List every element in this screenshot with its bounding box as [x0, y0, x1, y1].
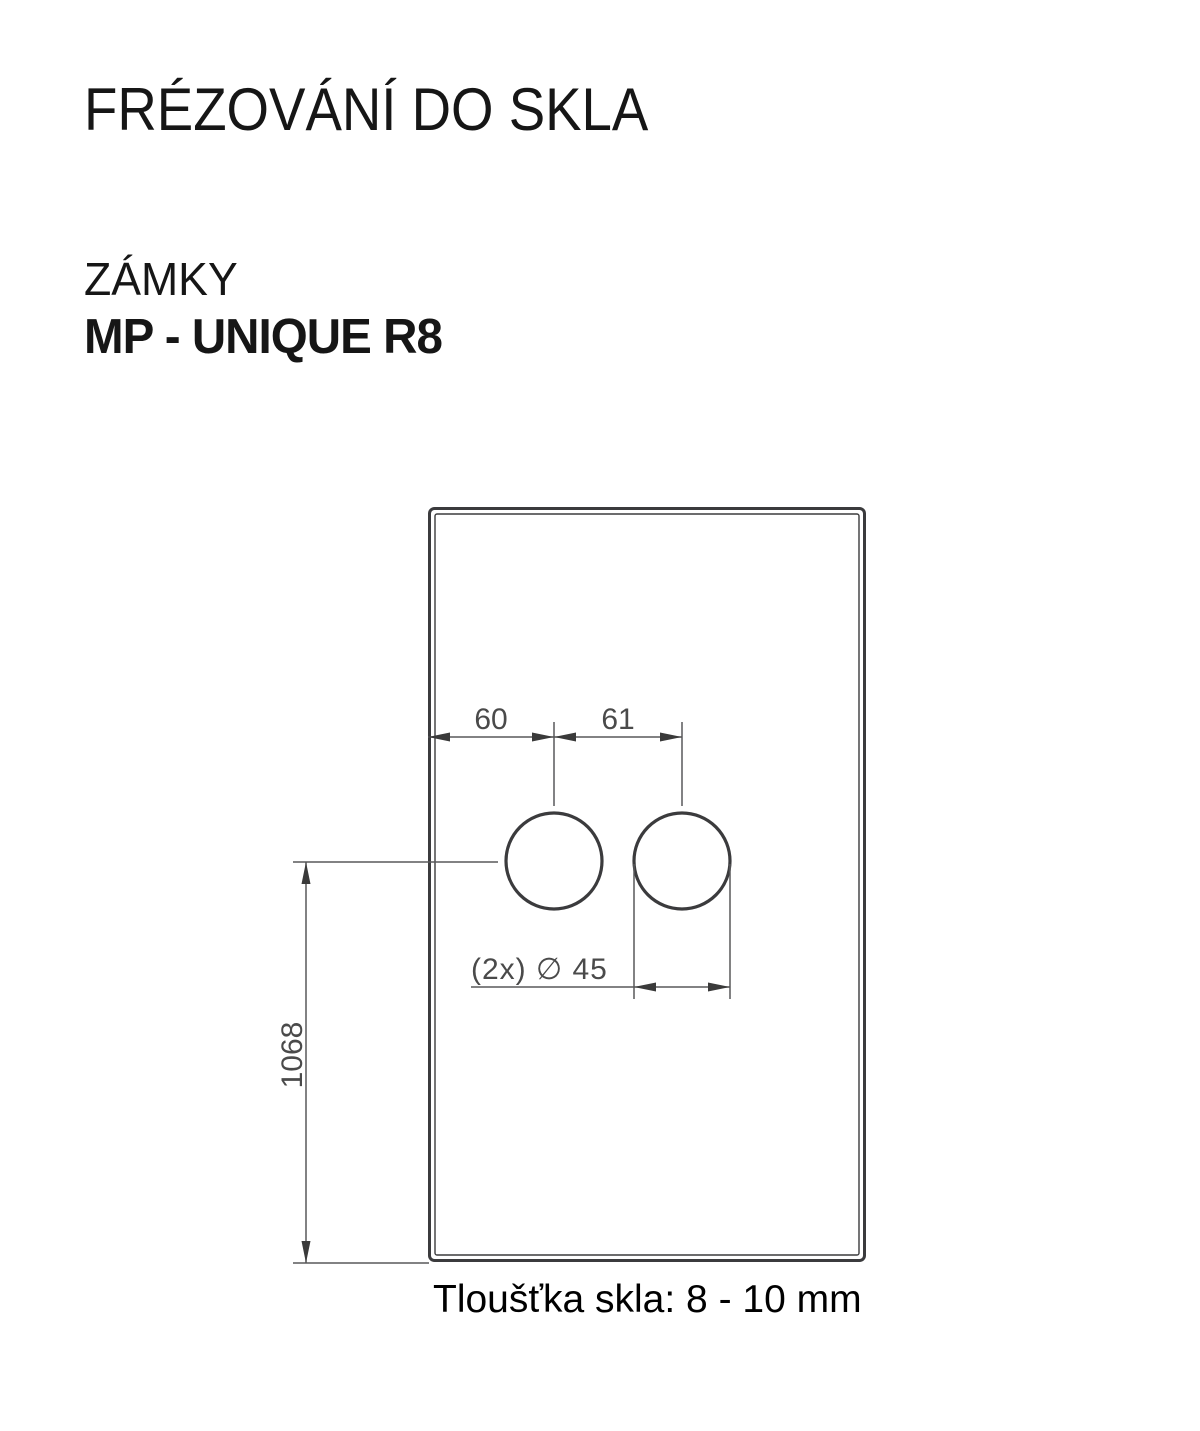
glass-panel-outer-edge — [430, 509, 865, 1261]
dim-label-61: 61 — [601, 703, 634, 736]
arrowhead-60-right — [532, 733, 554, 742]
hole-right — [634, 813, 730, 909]
dim-label-60: 60 — [474, 703, 507, 736]
hole-left — [506, 813, 602, 909]
arrowhead-left-edge — [428, 733, 450, 742]
arrowhead-61-right — [660, 733, 682, 742]
arrowhead-61-left — [554, 733, 576, 742]
glass-thickness-caption: Tloušťka skla: 8 - 10 mm — [433, 1280, 862, 1319]
glass-panel-inner-edge — [435, 514, 859, 1255]
arrowhead-diameter-left — [634, 983, 656, 992]
dimension-hole-diameter: (2x) ∅ 45 — [471, 864, 730, 999]
arrowhead-height-top — [302, 862, 311, 884]
dimension-top-horizontal: 60 61 — [428, 703, 682, 806]
dimension-height-vertical: 1068 — [276, 862, 498, 1263]
page: FRÉZOVÁNÍ DO SKLA ZÁMKY MP - UNIQUE R8 6… — [0, 0, 1200, 1431]
arrowhead-height-bottom — [302, 1241, 311, 1263]
dim-label-height: 1068 — [276, 1022, 309, 1089]
arrowhead-diameter-right — [708, 983, 730, 992]
technical-drawing: 60 61 (2x) ∅ 45 1068 — [0, 0, 1200, 1431]
glass-panel — [430, 509, 865, 1261]
dim-label-diameter: (2x) ∅ 45 — [471, 953, 608, 986]
